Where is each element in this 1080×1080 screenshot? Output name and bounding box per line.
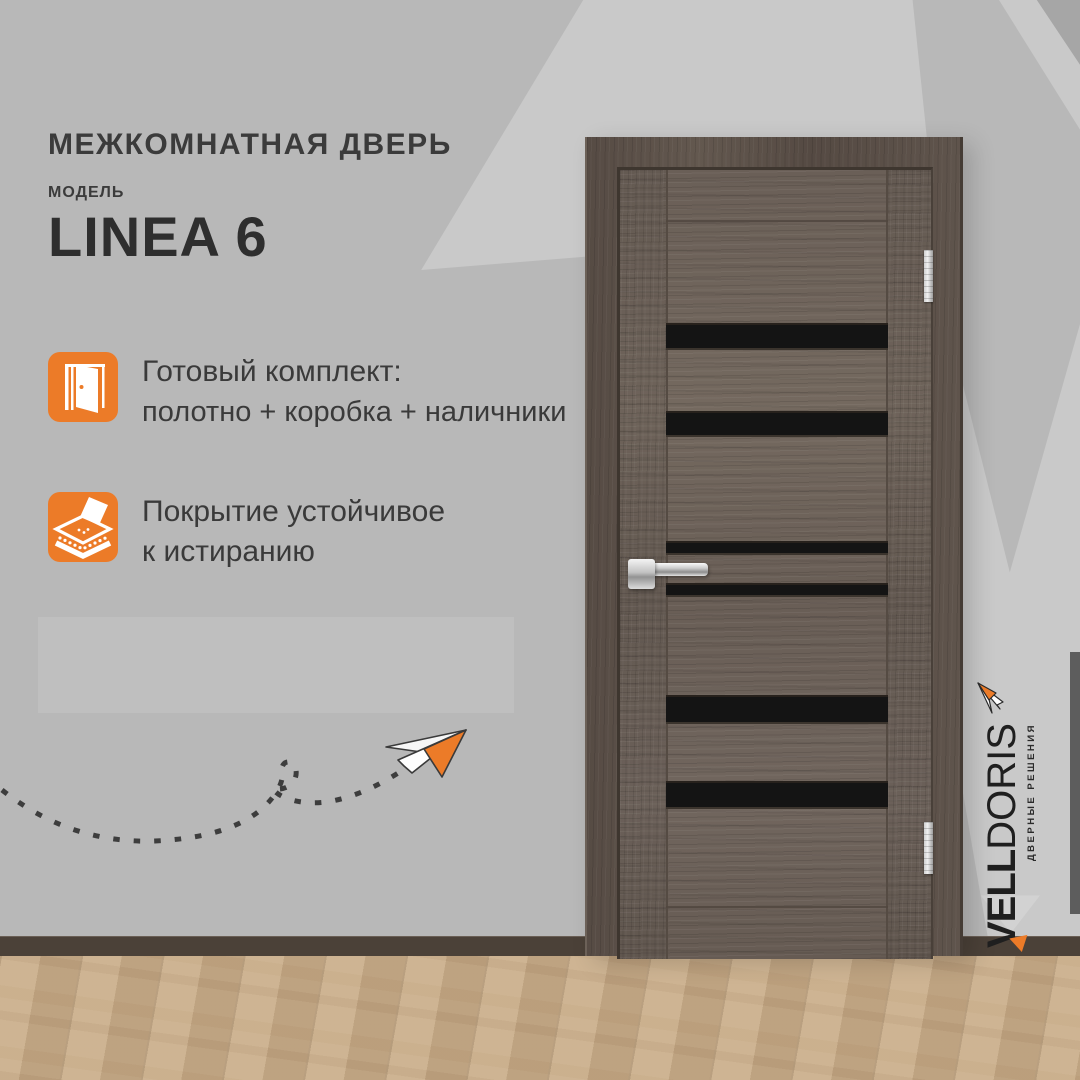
feature-text: Готовый комплект: полотно + коробка + на… <box>142 352 566 432</box>
model-label: МОДЕЛЬ <box>48 184 452 202</box>
wall-shape-edge <box>1070 652 1080 914</box>
glass-insert-6 <box>666 781 888 809</box>
glass-insert-4 <box>666 583 888 597</box>
wall-shape-band <box>38 617 514 713</box>
feature-line2: полотно + коробка + наличники <box>142 392 566 432</box>
door-leaf <box>617 167 933 959</box>
brand-tagline: ДВЕРНЫЕ РЕШЕНИЯ <box>1026 723 1037 948</box>
brand-name-light: DORIS <box>980 723 1025 850</box>
feature-line2: к истиранию <box>142 532 445 572</box>
glass-insert-5 <box>666 695 888 724</box>
brand-plane-icon <box>976 681 1006 715</box>
brand-name: VELLDORIS <box>980 723 1025 948</box>
paper-plane-icon <box>386 730 466 777</box>
feature-line1: Покрытие устойчивое <box>142 492 445 532</box>
dotted-path <box>2 762 406 841</box>
feature-text: Покрытие устойчивое к истиранию <box>142 492 445 572</box>
feature-ready-kit: Готовый комплект: полотно + коробка + на… <box>48 352 566 432</box>
door-groove <box>666 220 888 222</box>
brand-logo: VELLDORIS ДВЕРНЫЕ РЕШЕНИЯ <box>952 648 1064 948</box>
feature-coating: Покрытие устойчивое к истиранию <box>48 492 445 572</box>
header: МЕЖКОМНАТНАЯ ДВЕРЬ МОДЕЛЬ LINEA 6 <box>48 128 452 269</box>
glass-insert-3 <box>666 541 888 555</box>
door-frame <box>585 137 963 956</box>
wood-floor <box>0 956 1080 1080</box>
model-name: LINEA 6 <box>48 204 452 269</box>
page-title: МЕЖКОМНАТНАЯ ДВЕРЬ <box>48 128 452 162</box>
product-banner: { "header": { "title": "МЕЖКОМНАТНАЯ ДВЕ… <box>0 0 1080 1080</box>
door-handle-rosette <box>628 559 655 589</box>
glass-insert-2 <box>666 411 888 437</box>
feature-line1: Готовый комплект: <box>142 352 566 392</box>
hinge-top <box>924 250 933 302</box>
door-groove <box>666 906 888 908</box>
abrasion-resistant-coating-icon <box>48 492 118 562</box>
glass-insert-1 <box>666 323 888 350</box>
hinge-bottom <box>924 822 933 874</box>
open-door-icon <box>48 352 118 422</box>
